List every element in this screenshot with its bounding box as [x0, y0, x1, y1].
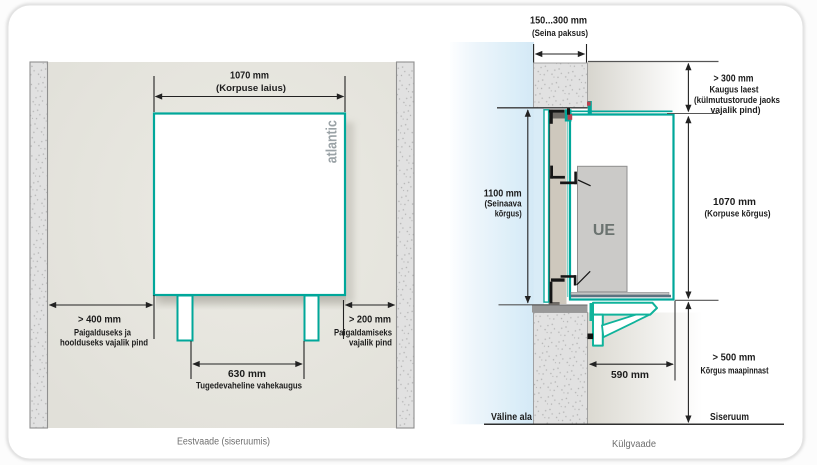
svg-text:Siseruum: Siseruum: [710, 412, 749, 423]
svg-text:590 mm: 590 mm: [611, 370, 649, 381]
svg-text:630 mm: 630 mm: [228, 369, 266, 380]
svg-text:(Seinaava: (Seinaava: [485, 199, 522, 209]
svg-text:1070 mm: 1070 mm: [230, 71, 269, 82]
svg-text:150...300 mm: 150...300 mm: [530, 16, 587, 27]
svg-text:1070 mm: 1070 mm: [713, 197, 756, 208]
svg-text:Paigalduseks ja: Paigalduseks ja: [74, 328, 131, 338]
svg-text:> 200 mm: > 200 mm: [349, 315, 391, 326]
svg-text:(Korpuse kõrgus): (Korpuse kõrgus): [705, 209, 771, 219]
svg-text:Tugedevaheline vahekaugus: Tugedevaheline vahekaugus: [196, 381, 302, 391]
svg-text:vajalik pind): vajalik pind): [711, 105, 761, 115]
svg-text:kõrgus): kõrgus): [495, 209, 522, 219]
svg-text:hoolduseks vajalik pind: hoolduseks vajalik pind: [60, 338, 148, 348]
svg-text:Paigaldamiseks: Paigaldamiseks: [334, 328, 392, 338]
svg-text:Kõrgus maapinnast: Kõrgus maapinnast: [701, 366, 769, 376]
svg-text:Kaugus laest: Kaugus laest: [710, 85, 759, 95]
svg-text:Eestvaade (siseruumis): Eestvaade (siseruumis): [177, 437, 270, 448]
svg-text:vajalik pind: vajalik pind: [349, 338, 392, 348]
svg-text:> 500 mm: > 500 mm: [713, 353, 756, 364]
svg-text:Väline ala: Väline ala: [491, 412, 532, 423]
svg-text:(Korpuse laius): (Korpuse laius): [216, 83, 286, 93]
svg-text:(Seina paksus): (Seina paksus): [532, 28, 588, 38]
svg-text:atlantic: atlantic: [325, 120, 341, 163]
svg-text:> 400 mm: > 400 mm: [78, 315, 121, 326]
svg-text:(külmutustorude jaoks: (külmutustorude jaoks: [694, 95, 780, 105]
svg-text:Külgvaade: Külgvaade: [612, 439, 656, 450]
svg-text:> 300 mm: > 300 mm: [714, 74, 754, 85]
svg-text:UE: UE: [593, 222, 616, 239]
